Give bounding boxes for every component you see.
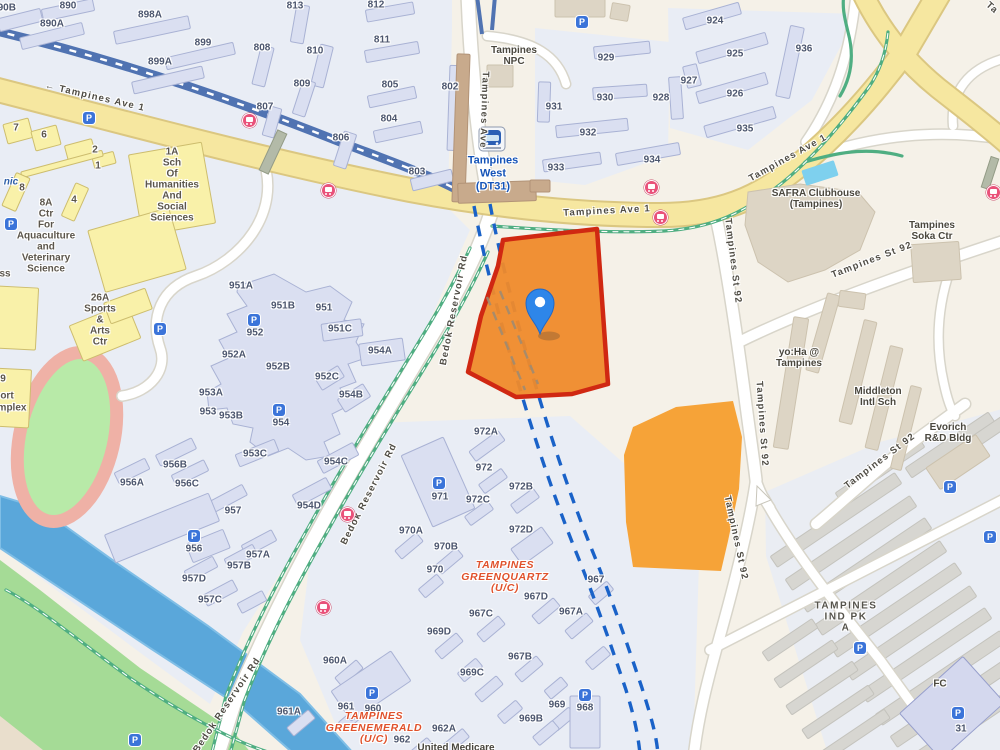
parking-icon[interactable]: P <box>433 477 445 489</box>
parking-icon[interactable]: P <box>366 687 378 699</box>
parking-icon[interactable]: P <box>273 404 285 416</box>
block-label: 956A <box>120 478 144 489</box>
bus-stop-icon[interactable] <box>644 180 659 195</box>
road-label: Tampines Ave 1 <box>563 203 651 219</box>
parking-icon[interactable]: P <box>984 531 996 543</box>
block-label: 972A <box>474 427 498 438</box>
road-label: Bedok Reservoir Rd <box>191 655 263 750</box>
road-label: Tampines St 92 <box>722 218 743 304</box>
parking-icon[interactable]: P <box>154 323 166 335</box>
block-label: 957C <box>198 595 222 606</box>
block-label: 967B <box>508 652 532 663</box>
block-label: 806 <box>333 133 350 144</box>
block-label: 898A <box>138 10 162 21</box>
place-label: MiddletonIntl Sch <box>854 386 901 408</box>
campus-label: 8 <box>19 183 25 194</box>
road-label: Tampines St 92 <box>842 431 917 491</box>
block-label: 960A <box>323 656 347 667</box>
place-label: TampinesSoka Ctr <box>909 220 955 242</box>
block-label: 804 <box>381 114 398 125</box>
block-label: 805 <box>382 80 399 91</box>
block-label: 899 <box>195 38 212 49</box>
block-label: 951A <box>229 281 253 292</box>
block-label: 972B <box>509 482 533 493</box>
campus-label: 9 <box>0 374 6 385</box>
parking-icon[interactable]: P <box>854 642 866 654</box>
place-label: 26ASports&ArtsCtr <box>84 293 116 348</box>
block-label: 933 <box>548 163 565 174</box>
block-label: 969 <box>549 700 566 711</box>
block-label: 932 <box>580 128 597 139</box>
parking-icon[interactable]: P <box>129 734 141 746</box>
block-label: 957 <box>225 506 242 517</box>
block-label: 970 <box>427 565 444 576</box>
place-label: yo:Ha @Tampines <box>776 347 822 369</box>
block-label: 953C <box>243 449 267 460</box>
place-label: EvorichR&D Bldg <box>925 422 972 444</box>
block-label: 970B <box>434 542 458 553</box>
block-label: 971 <box>432 492 449 503</box>
block-label: 808 <box>254 43 271 54</box>
campus-label: 7 <box>13 123 19 134</box>
road-label: ← Tampines Ave 1 <box>44 80 146 114</box>
block-label: 954A <box>368 346 392 357</box>
block-label: 954C <box>324 457 348 468</box>
place-label: FC <box>933 679 946 690</box>
block-label: 956B <box>163 460 187 471</box>
block-label: 969C <box>460 668 484 679</box>
block-label: 954B <box>339 390 363 401</box>
block-label: 890A <box>40 19 64 30</box>
block-label: 967C <box>469 609 493 620</box>
block-label: 967 <box>588 575 605 586</box>
place-label: TampinesNPC <box>491 45 537 67</box>
block-label: 952 <box>247 328 264 339</box>
block-label: 899A <box>148 57 172 68</box>
place-label: 1ASchOfHumanitiesAndSocialSciences <box>145 147 199 224</box>
road-label: Tampines Ave 1 <box>747 132 829 184</box>
block-label: 807 <box>257 102 274 113</box>
block-label: 957A <box>246 550 270 561</box>
road-label: Bedok Reservoir Rd <box>438 254 470 366</box>
block-label: 952B <box>266 362 290 373</box>
parking-icon[interactable]: P <box>5 218 17 230</box>
road-label: Tampines St 92 <box>722 495 751 581</box>
road-label: Tampines Ave <box>477 71 491 149</box>
map-canvas[interactable]: ← Tampines Ave 1Tampines Ave 1Tampines A… <box>0 0 1000 750</box>
bus-stop-icon[interactable] <box>340 507 355 522</box>
campus-label: 6 <box>41 130 47 141</box>
block-label: 810 <box>307 46 324 57</box>
road-label: Tampines St 92 <box>754 381 771 467</box>
block-label: 953 <box>200 407 217 418</box>
block-label: 954D <box>297 501 321 512</box>
block-label: 954 <box>273 418 290 429</box>
block-label: 813 <box>287 1 304 12</box>
label-fragment: nic <box>4 177 18 188</box>
block-label: 951 <box>316 303 333 314</box>
parking-icon[interactable]: P <box>944 481 956 493</box>
parking-icon[interactable]: P <box>952 707 964 719</box>
block-label: 952C <box>315 372 339 383</box>
block-label: 969B <box>519 714 543 725</box>
block-label: 957B <box>227 561 251 572</box>
block-label: 928 <box>653 93 670 104</box>
block-label: 956 <box>186 544 203 555</box>
place-label: TAMPINESIND PKA <box>815 601 878 634</box>
road-label: Ta <box>984 0 1000 16</box>
road-label: Tampines St 92 <box>830 239 914 280</box>
label-layer: ← Tampines Ave 1Tampines Ave 1Tampines A… <box>0 0 1000 750</box>
parking-icon[interactable]: P <box>579 689 591 701</box>
bus-stop-icon[interactable] <box>321 183 336 198</box>
parking-icon[interactable]: P <box>188 530 200 542</box>
block-label: 953A <box>199 388 223 399</box>
block-label: 961A <box>277 707 301 718</box>
block-label: 956C <box>175 479 199 490</box>
campus-label: 2 <box>92 145 98 156</box>
campus-label: 1 <box>95 161 101 172</box>
campus-label: ss <box>0 269 11 280</box>
block-label: 803 <box>409 167 426 178</box>
bus-stop-icon[interactable] <box>653 210 668 225</box>
block-label: 809 <box>294 79 311 90</box>
campus-label: mplex <box>0 403 26 414</box>
block-label: 972C <box>466 495 490 506</box>
place-label: United Medicare <box>417 743 494 750</box>
campus-label: ort <box>0 391 13 402</box>
block-label: 890B <box>0 3 16 14</box>
block-label: 926 <box>727 89 744 100</box>
place-label: SAFRA Clubhouse(Tampines) <box>772 188 861 210</box>
block-label: 929 <box>598 53 615 64</box>
block-label: 935 <box>737 124 754 135</box>
bus-stop-icon[interactable] <box>316 600 331 615</box>
parking-icon[interactable]: P <box>576 16 588 28</box>
block-label: 969D <box>427 627 451 638</box>
block-label: 890 <box>60 1 77 12</box>
block-label: 972 <box>476 463 493 474</box>
parking-icon[interactable]: P <box>83 112 95 124</box>
block-label: 967A <box>559 607 583 618</box>
bus-stop-icon[interactable] <box>986 185 1000 200</box>
block-label: 812 <box>368 0 385 11</box>
block-label: 811 <box>374 35 390 46</box>
block-label: 957D <box>182 574 206 585</box>
block-label: 924 <box>707 16 724 27</box>
block-label: 931 <box>546 102 563 113</box>
block-label: 951C <box>328 324 352 335</box>
place-label: TAMPINESGREENQUARTZ(U/C) <box>461 560 549 595</box>
block-label: 927 <box>681 76 698 87</box>
block-label: 952A <box>222 350 246 361</box>
block-label: 968 <box>577 703 594 714</box>
bus-stop-icon[interactable] <box>242 113 257 128</box>
block-label: 930 <box>597 93 614 104</box>
place-label: 8ACtrForAquacultureandVeterinaryScience <box>17 198 75 275</box>
block-label: 953B <box>219 411 243 422</box>
block-label: 972D <box>509 525 533 536</box>
block-label: 970A <box>399 526 423 537</box>
block-label: 925 <box>727 49 744 60</box>
place-label: TAMPINESGREENEMERALD(U/C) <box>326 711 422 746</box>
block-label: 951B <box>271 301 295 312</box>
block-label: 31 <box>955 724 966 735</box>
block-label: 802 <box>442 82 459 93</box>
place-label: TampinesWest(DT31) <box>468 155 519 194</box>
parking-icon[interactable]: P <box>248 314 260 326</box>
block-label: 962A <box>432 724 456 735</box>
block-label: 934 <box>644 155 661 166</box>
block-label: 936 <box>796 44 813 55</box>
